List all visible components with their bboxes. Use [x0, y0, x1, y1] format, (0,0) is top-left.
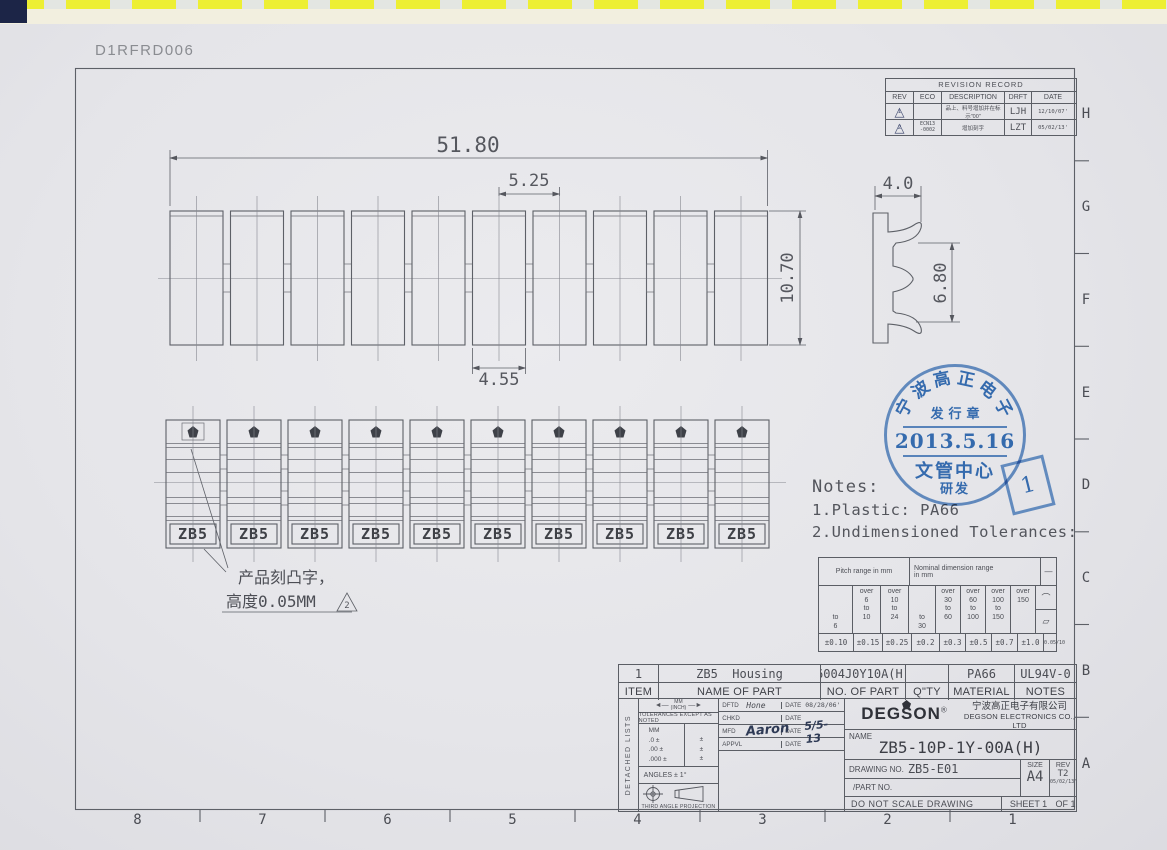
- svg-text:51.80: 51.80: [436, 133, 499, 157]
- revision-record-title: REVISION RECORD: [886, 79, 1076, 92]
- frame-col-label: 2: [825, 809, 950, 831]
- part-label: ZB5: [288, 524, 342, 544]
- tolerance-decimal-rows: MM .0 ± .00 ± .000 ±: [639, 724, 685, 766]
- sheet-number: SHEET 1: [1001, 797, 1055, 811]
- straightness-symbol: —: [1041, 558, 1056, 585]
- part-label: ZB5: [410, 524, 464, 544]
- tolerance-pm-column: ± ± ±: [685, 724, 719, 766]
- company-name-en: DEGSON ELECTRONICS CO., LTD: [963, 712, 1076, 730]
- tolerance-value-cell: ±1.0: [1018, 634, 1044, 651]
- dim-profile-height: 6.80: [916, 243, 960, 322]
- frame-row-label: A: [1077, 717, 1095, 810]
- revision-rows: △1 品上、料号增加并在标示"00" LJH 12/10/07' △2 ECN1…: [886, 104, 1076, 135]
- tolerance-ranges: to 6over 6 to 10over 10 to 24to 30over 3…: [819, 586, 1036, 633]
- front-view-part-labels: ZB5ZB5ZB5ZB5ZB5ZB5ZB5ZB5ZB5ZB5: [166, 524, 776, 544]
- dim-pitch: 5.25: [499, 171, 560, 196]
- units-inch: (INCH): [671, 705, 687, 711]
- dim-profile-width: 4.0: [875, 174, 921, 222]
- tolerance-note: TOLERANCES EXCEPT AS NOTED: [639, 713, 719, 724]
- tolerance-value-cell: ±0.3: [940, 634, 966, 651]
- tolerance-value-cell: ±0.2: [912, 634, 940, 651]
- tolerance-value-cell: ±0.10: [819, 634, 854, 651]
- svg-text:5.25: 5.25: [509, 171, 550, 191]
- drawing-no-label: DRAWING NO.: [849, 765, 904, 774]
- frame-row-label: H: [1077, 68, 1095, 161]
- svg-text:4.0: 4.0: [883, 174, 914, 194]
- signature-label: DFTD: [719, 702, 746, 709]
- revision-date: 05/02/13': [1032, 120, 1074, 135]
- part-label: ZB5: [349, 524, 403, 544]
- flatness-value: 0.05/10: [1044, 634, 1065, 651]
- title-block: DETACHED LISTS ◄— MM (INCH) —► TOLERANCE…: [618, 698, 1077, 812]
- arc-symbol: ⌒: [1036, 586, 1056, 610]
- right-arrow-icon: —►: [688, 702, 702, 709]
- nominal-range-header: Nominal dimension range in mm: [910, 558, 1041, 585]
- frame-col-label: 8: [75, 809, 200, 831]
- tolerance-range-cell: over 10 to 24: [881, 586, 909, 633]
- stamp-issue-text: 发行章: [887, 403, 1023, 422]
- description-col-header: DESCRIPTION: [942, 92, 1005, 103]
- engrave-note-line1: 产品刻凸字，: [238, 564, 334, 588]
- date-label: DATE: [781, 741, 805, 748]
- frame-col-label: 5: [450, 809, 575, 831]
- tolerance-value-cell: ±0.7: [992, 634, 1018, 651]
- date-value: 5/5-13: [804, 716, 845, 746]
- frame-col-label: 3: [700, 809, 825, 831]
- company-name-cn: 宁波高正电子有限公司: [963, 698, 1076, 712]
- revision-description: 增加刻字: [942, 120, 1005, 135]
- note-tolerances: 2.Undimensioned Tolerances:: [812, 523, 1077, 541]
- frame-row-labels: HGFEDCBA: [1077, 68, 1095, 810]
- parts-list-value-cell: UL94V-0: [1015, 665, 1076, 682]
- signature-label: MFD: [719, 728, 746, 735]
- notes-title: Notes:: [812, 477, 879, 497]
- tolerance-value-cell: ±0.15: [854, 634, 883, 651]
- signature-row: MFD Aaron DATE 5/5-13: [719, 725, 844, 738]
- tolerance-range-cell: to 30: [909, 586, 936, 633]
- tolerance-range-cell: over 60 to 100: [961, 586, 986, 633]
- rev-value: T2: [1050, 769, 1076, 779]
- revision-eco: ECN13 -0002: [914, 120, 942, 135]
- part-label: ZB5: [227, 524, 281, 544]
- part-label: ZB5: [593, 524, 647, 544]
- tolerance-value-cell: ±0.5: [966, 634, 992, 651]
- revision-triangle-icon: △1: [892, 105, 907, 118]
- part-label: ZB5: [471, 524, 525, 544]
- part-label: ZB5: [166, 524, 220, 544]
- svg-text:2: 2: [344, 601, 349, 611]
- detached-lists-label: DETACHED LISTS: [625, 715, 632, 795]
- frame-col-label: 6: [325, 809, 450, 831]
- date-label: DATE: [781, 702, 805, 709]
- tolerance-values: ±0.10±0.15±0.25±0.2±0.3±0.5±0.7±1.0: [819, 634, 1044, 651]
- stamp-divider: [903, 426, 1007, 428]
- revision-date: 12/10/07': [1032, 104, 1074, 119]
- parts-list-values: 1ZB5 Housing6004J0Y10A(H)PA66UL94V-0: [619, 665, 1076, 683]
- svg-text:4.55: 4.55: [479, 370, 520, 390]
- frame-col-label: 1: [950, 809, 1075, 831]
- revision-row: △1 品上、料号增加并在标示"00" LJH 12/10/07': [886, 104, 1076, 120]
- drft-col-header: DRFT: [1005, 92, 1032, 103]
- tolerance-range-cell: over 150: [1011, 586, 1036, 633]
- frame-row-label: F: [1077, 254, 1095, 347]
- rev-label: REV: [1050, 762, 1076, 769]
- parts-list-value-cell: [906, 665, 949, 682]
- eco-col-header: ECO: [914, 92, 942, 103]
- tolerance-value-cell: ±0.25: [883, 634, 912, 651]
- svg-text:10.70: 10.70: [778, 252, 798, 303]
- side-profile-view: [873, 213, 921, 343]
- size-value: A4: [1021, 769, 1049, 785]
- projection-caption: THIRD ANGLE PROJECTION: [639, 804, 719, 810]
- frame-row-label: C: [1077, 532, 1095, 625]
- parts-list-value-cell: 1: [619, 665, 659, 682]
- dim-overall-width: 51.80: [170, 133, 768, 206]
- do-not-scale: DO NOT SCALE DRAWING: [845, 799, 1001, 809]
- signature-label: CHKD: [719, 715, 746, 722]
- flatness-symbol: ▱: [1036, 610, 1056, 633]
- signature-value: Aaron: [746, 721, 782, 739]
- rev-col-header: REV: [886, 92, 914, 103]
- frame-col-label: 7: [200, 809, 325, 831]
- part-label: ZB5: [532, 524, 586, 544]
- parts-list-table: 1ZB5 Housing6004J0Y10A(H)PA66UL94V-0 ITE…: [618, 664, 1077, 700]
- tolerance-range-cell: to 6: [819, 586, 853, 633]
- pitch-range-header: Pitch range in mm: [819, 558, 910, 585]
- frame-col-labels: 87654321: [75, 809, 1075, 831]
- engrave-note-line2: 高度0.05MM: [226, 588, 316, 612]
- frame-row-label: D: [1077, 439, 1095, 532]
- signature-row: DFTD Hone DATE 08/28/06': [719, 699, 844, 712]
- frame-row-label: G: [1077, 161, 1095, 254]
- part-name: ZB5-10P-1Y-00A(H): [845, 738, 1076, 757]
- revision-drafter: LJH: [1005, 104, 1032, 119]
- tolerance-range-cell: over 30 to 60: [936, 586, 961, 633]
- stamp-dept-text: 研发: [887, 478, 1023, 497]
- degson-logo: DEGSON®: [845, 704, 963, 724]
- size-label: SIZE: [1021, 762, 1049, 769]
- sheet-of: OF 1: [1055, 799, 1076, 809]
- rev-date: 05/02/13': [1050, 779, 1076, 785]
- revision-drafter: LZT: [1005, 120, 1032, 135]
- part-no-label: /PART NO.: [845, 779, 1020, 796]
- parts-list-value-cell: 6004J0Y10A(H): [821, 665, 906, 682]
- left-arrow-icon: ◄—: [655, 702, 669, 709]
- date-value: 08/28/06': [805, 701, 844, 709]
- angles-tolerance: ANGLES ± 1°: [639, 767, 719, 784]
- frame-row-label: B: [1077, 625, 1095, 718]
- drawing-no: ZB5-E01: [908, 762, 959, 776]
- revision-record-headers: REV ECO DESCRIPTION DRFT DATE: [886, 92, 1076, 104]
- frame-row-label: E: [1077, 346, 1095, 439]
- signature-label: APPVL: [719, 741, 746, 748]
- signature-value: Hone: [746, 701, 781, 710]
- svg-text:6.80: 6.80: [931, 263, 951, 304]
- tolerance-range-cell: over 100 to 150: [986, 586, 1011, 633]
- title-block-tolerances: ◄— MM (INCH) —► TOLERANCES EXCEPT AS NOT…: [639, 699, 720, 811]
- stamp-date: 2013.5.16: [887, 429, 1023, 453]
- revision-triangle-icon: △2: [892, 121, 907, 134]
- revision-description: 品上、料号增加并在标示"00": [942, 104, 1005, 119]
- revision-row: △2 ECN13 -0002 增加刻字 LZT 05/02/13': [886, 120, 1076, 135]
- tolerance-table: Pitch range in mm Nominal dimension rang…: [818, 557, 1057, 652]
- tolerance-range-cell: over 6 to 10: [853, 586, 881, 633]
- parts-list-value-cell: PA66: [949, 665, 1015, 682]
- frame-col-label: 4: [575, 809, 700, 831]
- scanned-drawing-page: { "page": { "doc_code": "D1RFRD006" }, "…: [0, 0, 1167, 850]
- date-col-header: DATE: [1032, 92, 1074, 103]
- revision-record-table: REVISION RECORD REV ECO DESCRIPTION DRFT…: [885, 78, 1077, 136]
- signature-rows: DFTD Hone DATE 08/28/06' CHKD DATE MFD A…: [719, 699, 845, 811]
- dim-body-height: 10.70: [769, 211, 806, 345]
- part-label: ZB5: [654, 524, 708, 544]
- parts-list-value-cell: ZB5 Housing: [659, 665, 821, 682]
- revision-eco: [914, 104, 942, 119]
- part-label: ZB5: [715, 524, 769, 544]
